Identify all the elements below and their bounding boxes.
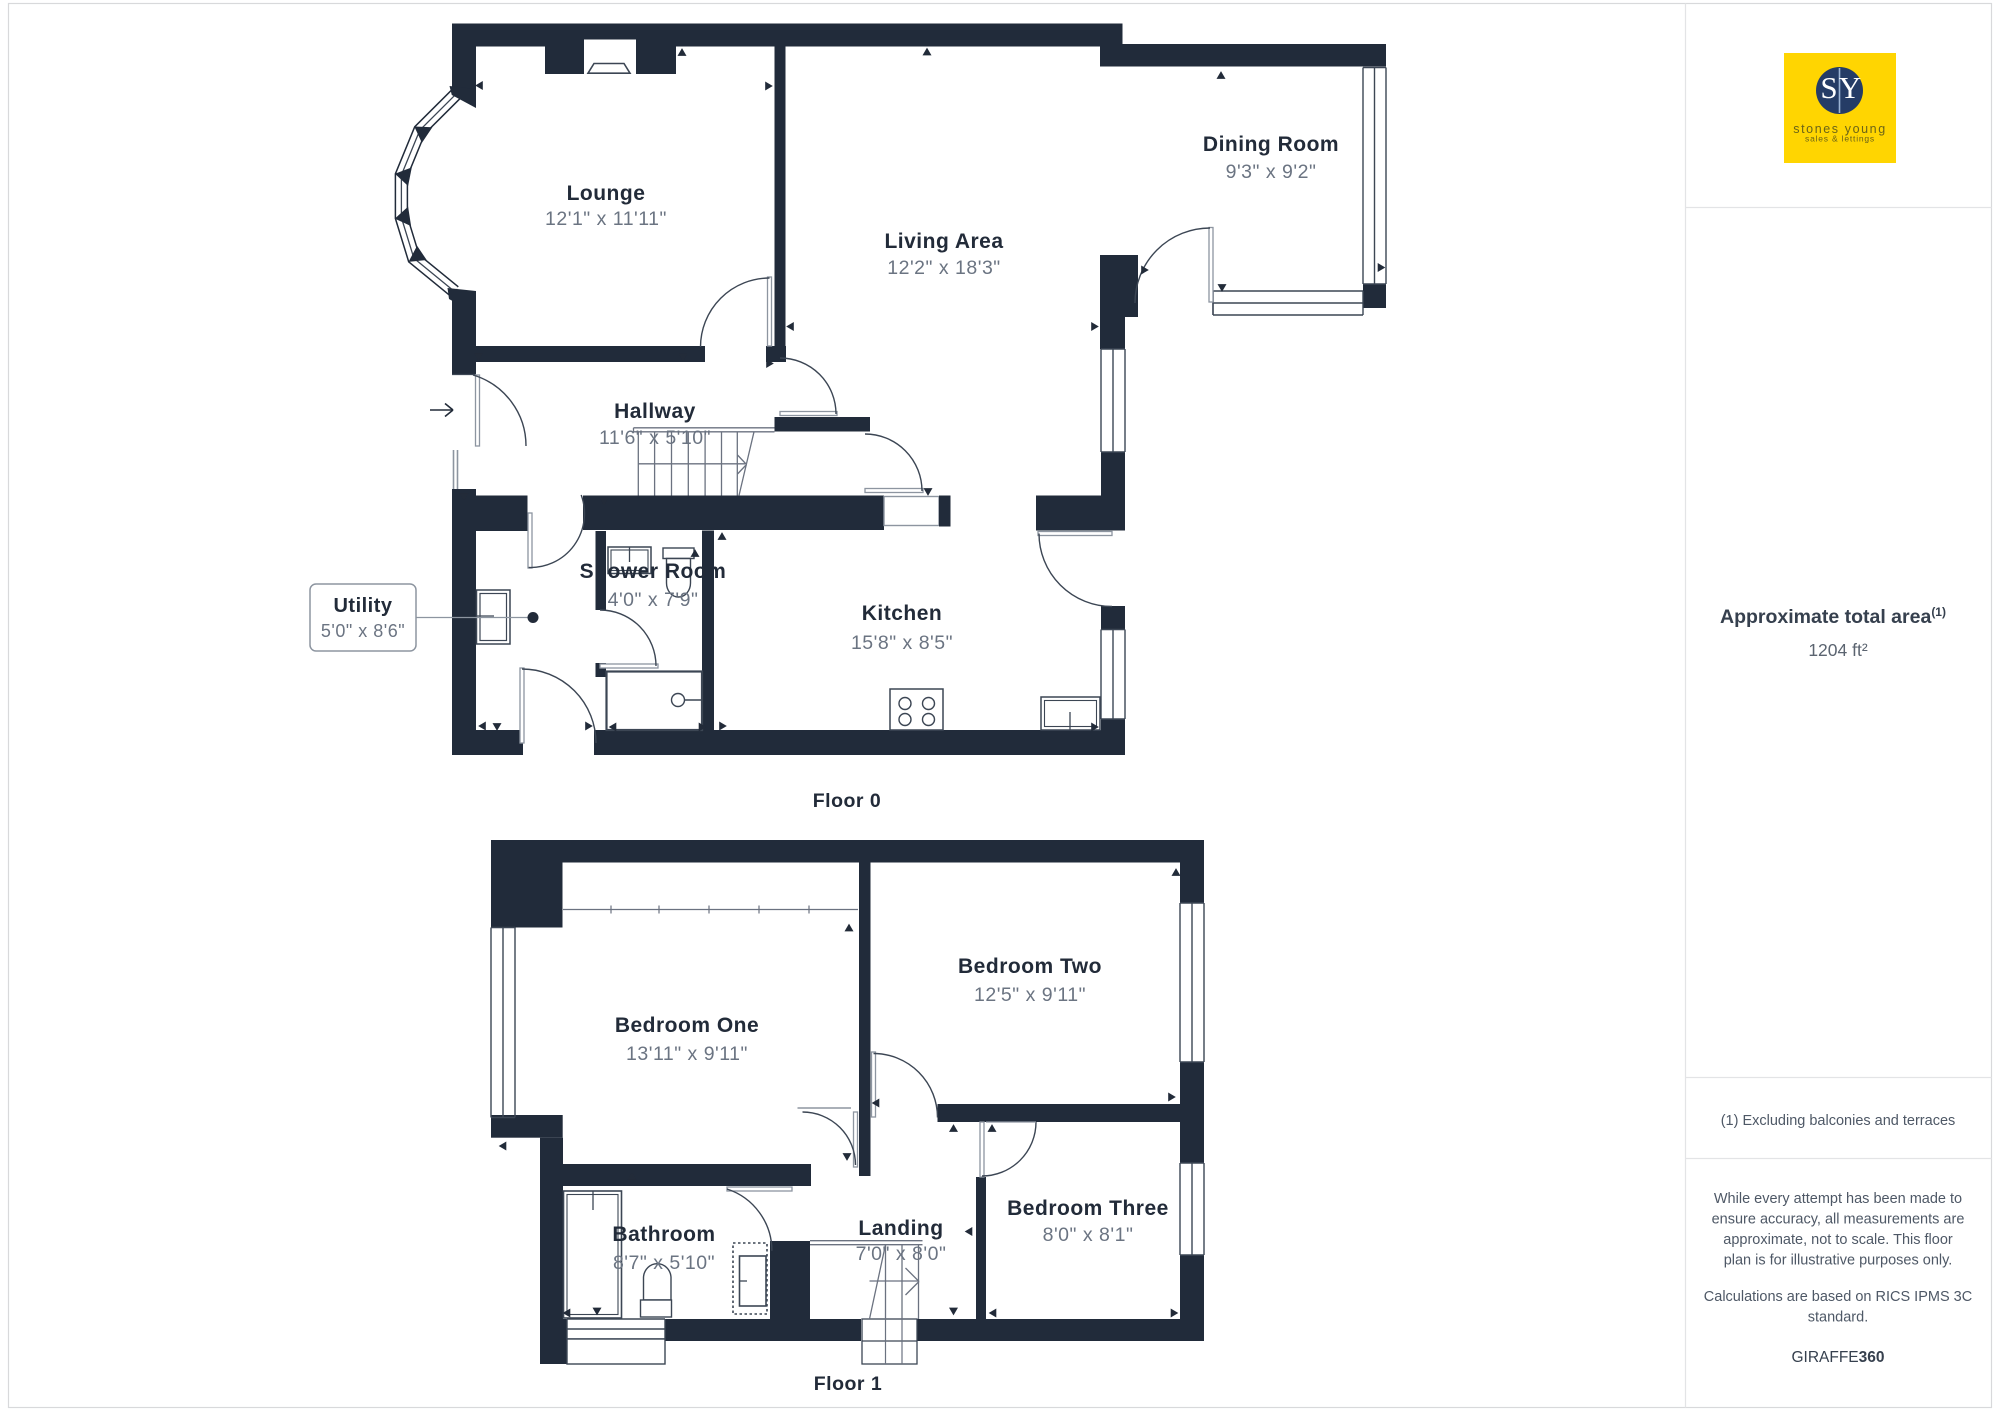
svg-text:1204 ft²: 1204 ft² [1808, 640, 1868, 660]
svg-text:12'2" x 18'3": 12'2" x 18'3" [887, 257, 1000, 279]
svg-text:Floor 1: Floor 1 [814, 1373, 883, 1395]
svg-text:approximate, not to scale. Thi: approximate, not to scale. This floor [1723, 1232, 1953, 1248]
svg-text:Y: Y [1839, 70, 1861, 105]
svg-text:8'0" x 8'1": 8'0" x 8'1" [1043, 1224, 1134, 1246]
svg-text:Hallway: Hallway [614, 400, 696, 423]
svg-text:Lounge: Lounge [567, 182, 646, 205]
svg-text:ensure accuracy, all measureme: ensure accuracy, all measurements are [1712, 1212, 1965, 1228]
svg-text:standard.: standard. [1808, 1310, 1868, 1326]
svg-text:Bedroom Three: Bedroom Three [1007, 1197, 1169, 1220]
svg-text:Landing: Landing [858, 1217, 943, 1240]
svg-text:13'11" x 9'11": 13'11" x 9'11" [626, 1043, 748, 1065]
svg-text:Bedroom One: Bedroom One [615, 1014, 759, 1037]
svg-text:S: S [1820, 70, 1837, 105]
svg-text:Approximate total area(1): Approximate total area(1) [1720, 605, 1946, 628]
svg-text:Floor 0: Floor 0 [813, 790, 882, 812]
svg-text:12'1" x 11'11": 12'1" x 11'11" [545, 208, 667, 230]
svg-text:Utility: Utility [333, 595, 392, 617]
svg-text:7'0" x 8'0": 7'0" x 8'0" [856, 1243, 947, 1265]
svg-text:Bedroom Two: Bedroom Two [958, 955, 1102, 978]
svg-text:Calculations are based on RICS: Calculations are based on RICS IPMS 3C [1704, 1289, 1972, 1305]
svg-text:12'5" x 9'11": 12'5" x 9'11" [974, 984, 1086, 1006]
svg-text:(1) Excluding balconies and te: (1) Excluding balconies and terraces [1721, 1113, 1956, 1129]
svg-text:9'3" x 9'2": 9'3" x 9'2" [1226, 161, 1317, 183]
svg-text:5'0" x 8'6": 5'0" x 8'6" [321, 621, 405, 641]
svg-text:sales & lettings: sales & lettings [1805, 134, 1875, 144]
svg-text:15'8" x 8'5": 15'8" x 8'5" [851, 632, 953, 654]
svg-text:Living Area: Living Area [884, 230, 1003, 253]
svg-text:8'7" x 5'10": 8'7" x 5'10" [613, 1252, 715, 1274]
svg-text:While every attempt has been m: While every attempt has been made to [1714, 1191, 1962, 1207]
svg-text:Bathroom: Bathroom [612, 1223, 715, 1246]
svg-text:Shower Room: Shower Room [580, 560, 727, 583]
svg-text:4'0" x 7'9": 4'0" x 7'9" [608, 589, 699, 611]
svg-text:Kitchen: Kitchen [862, 602, 943, 625]
svg-text:plan is for illustrative purpo: plan is for illustrative purposes only. [1724, 1253, 1953, 1269]
svg-text:Dining Room: Dining Room [1203, 133, 1339, 156]
svg-text:11'6" x 5'10": 11'6" x 5'10" [599, 427, 711, 449]
svg-text:GIRAFFE360: GIRAFFE360 [1791, 1349, 1884, 1366]
